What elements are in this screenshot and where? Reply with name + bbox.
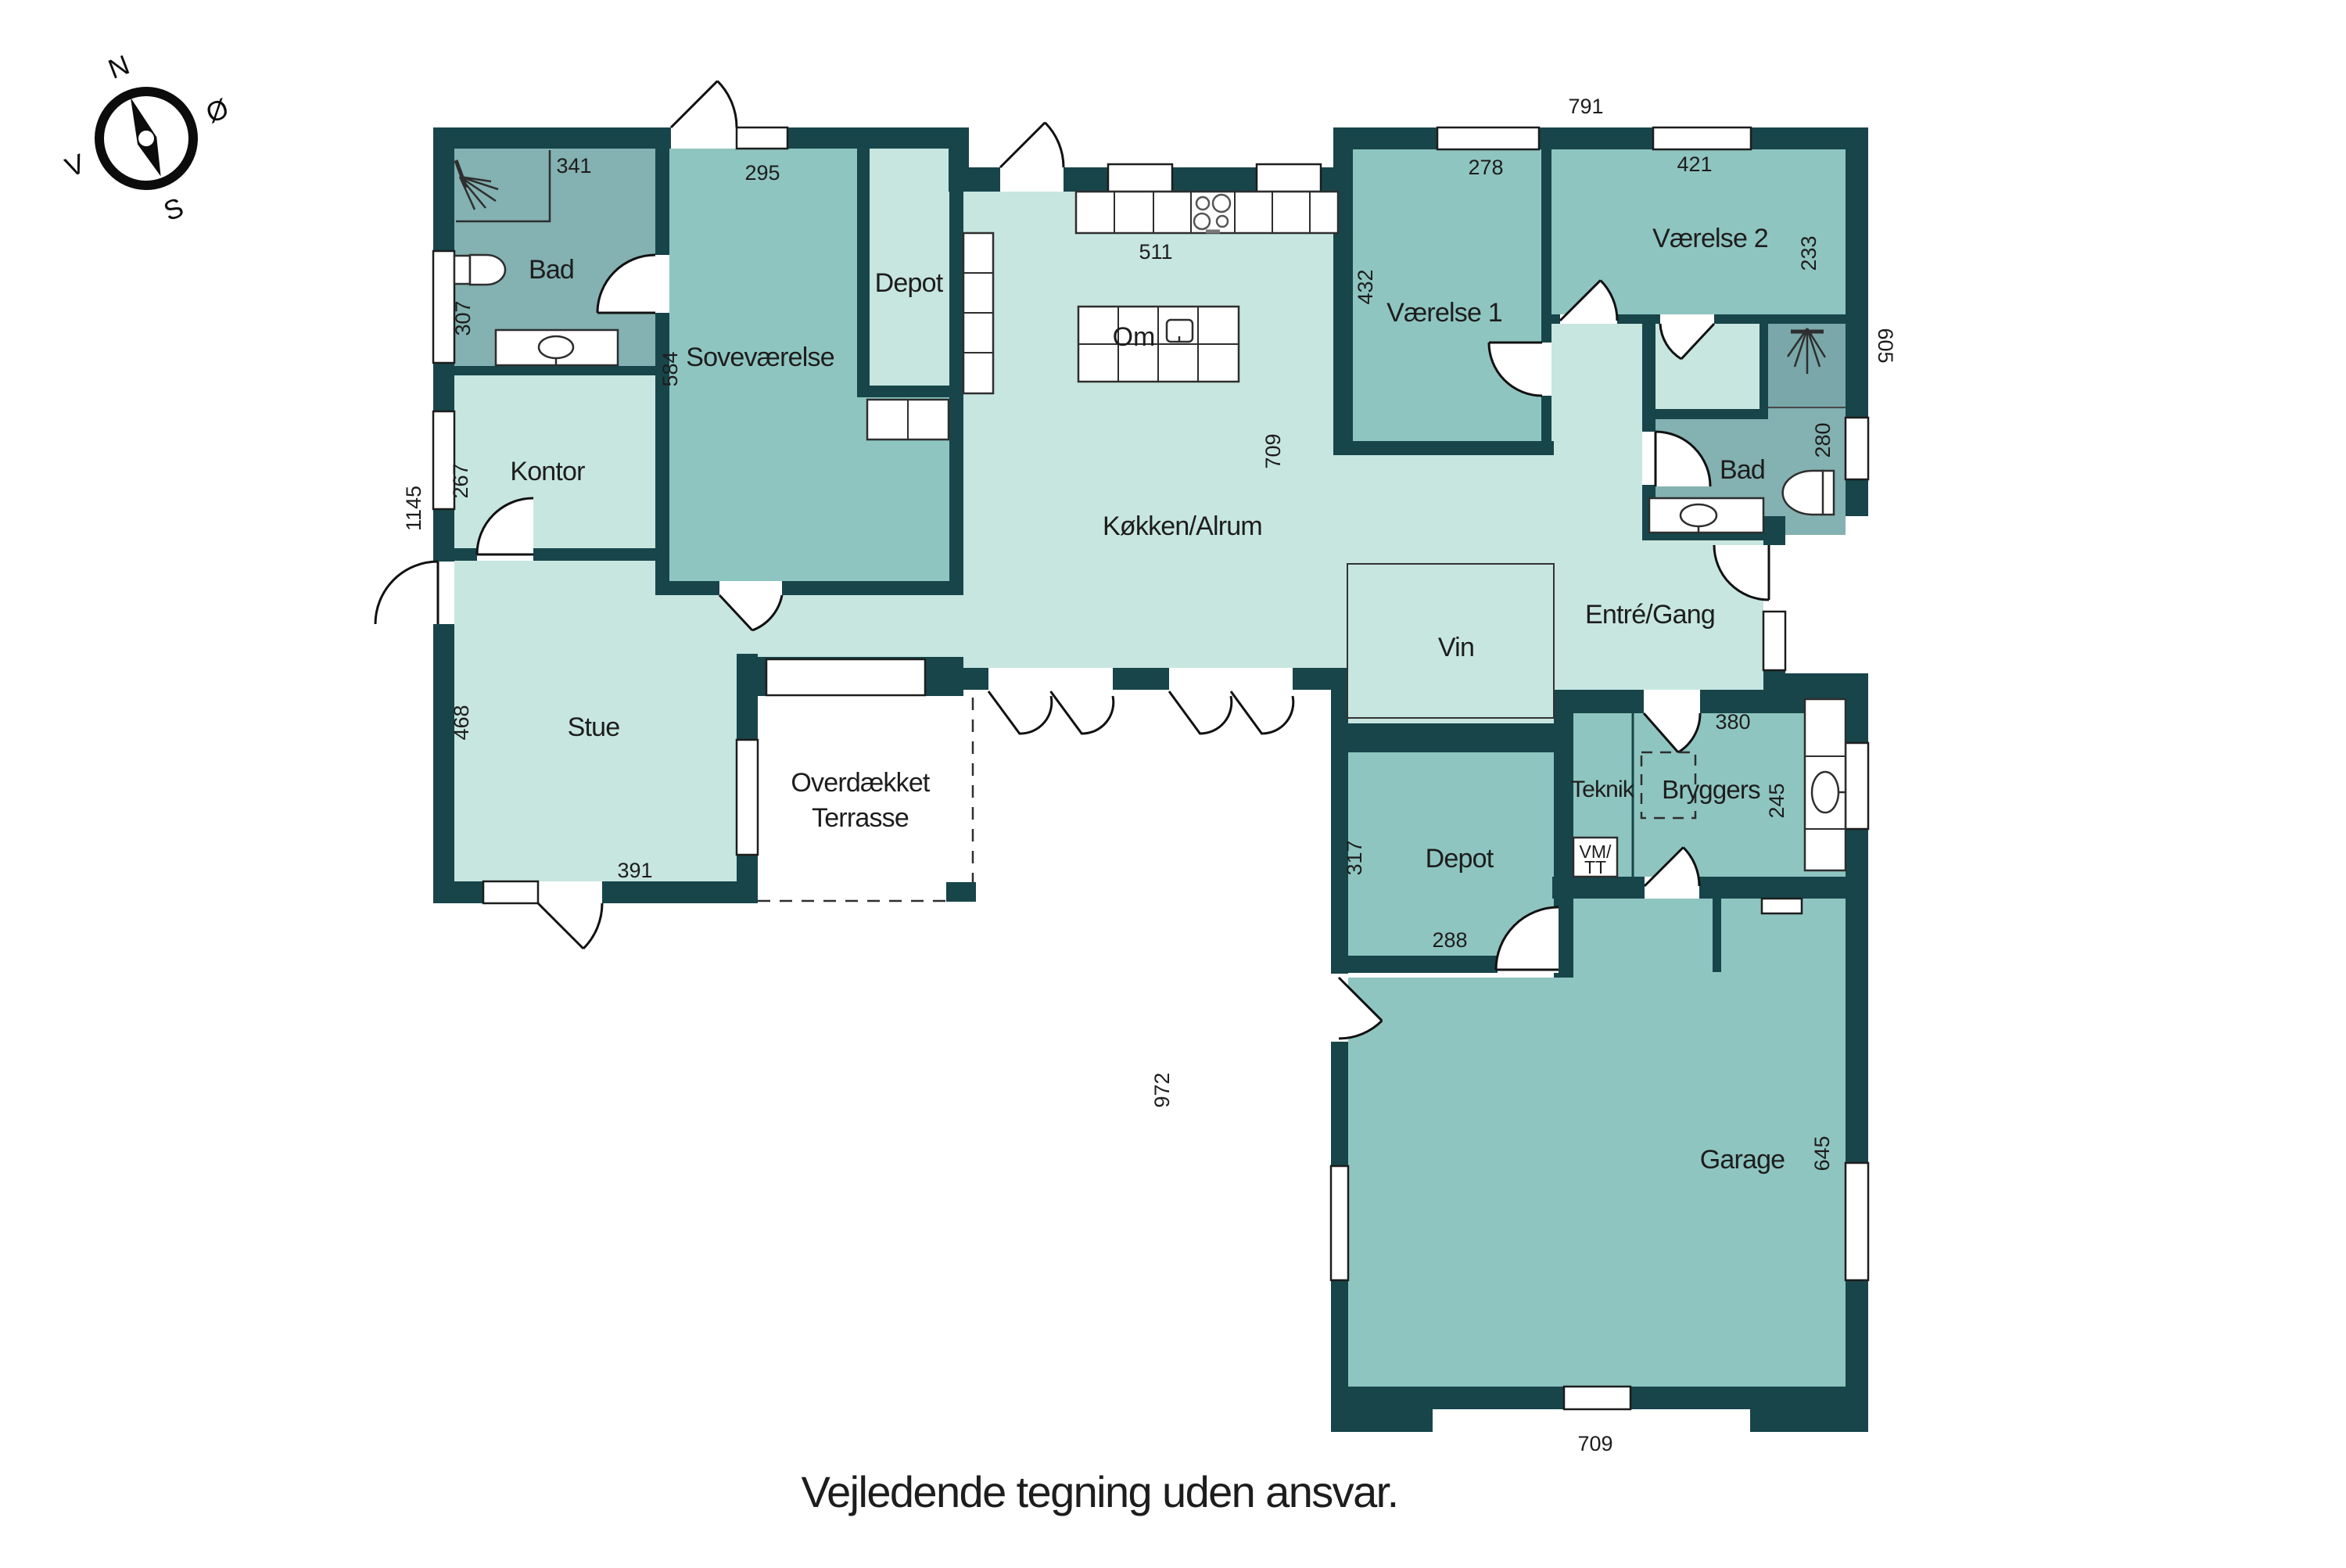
svg-text:TT: TT — [1584, 857, 1606, 877]
svg-text:245: 245 — [1765, 783, 1788, 818]
svg-text:791: 791 — [1568, 95, 1603, 118]
svg-text:Overdækket: Overdækket — [791, 768, 931, 798]
svg-text:Værelse 2: Værelse 2 — [1652, 224, 1768, 253]
svg-text:Bad: Bad — [529, 255, 574, 285]
svg-text:605: 605 — [1874, 328, 1897, 363]
svg-text:Stue: Stue — [568, 712, 620, 742]
svg-text:511: 511 — [1139, 240, 1172, 264]
svg-text:Soveværelse: Soveværelse — [686, 343, 834, 372]
svg-text:645: 645 — [1810, 1136, 1834, 1171]
svg-text:Om: Om — [1113, 322, 1156, 352]
svg-text:Depot: Depot — [1426, 844, 1494, 874]
svg-text:233: 233 — [1797, 235, 1820, 271]
svg-text:295: 295 — [744, 161, 780, 185]
svg-text:432: 432 — [1354, 269, 1377, 304]
svg-text:391: 391 — [617, 859, 652, 882]
svg-text:468: 468 — [450, 705, 473, 740]
svg-text:Bryggers: Bryggers — [1662, 775, 1760, 804]
svg-text:Kontor: Kontor — [510, 457, 585, 486]
svg-text:Køkken/Alrum: Køkken/Alrum — [1103, 511, 1262, 541]
svg-text:278: 278 — [1468, 156, 1503, 179]
svg-text:280: 280 — [1811, 422, 1835, 457]
svg-text:288: 288 — [1432, 928, 1467, 952]
svg-text:Teknik: Teknik — [1571, 777, 1635, 802]
svg-text:709: 709 — [1261, 433, 1285, 468]
svg-text:709: 709 — [1577, 1432, 1612, 1455]
svg-text:Depot: Depot — [875, 268, 944, 298]
svg-text:584: 584 — [658, 351, 682, 386]
svg-text:Vejledende tegning uden ansvar: Vejledende tegning uden ansvar. — [801, 1467, 1397, 1516]
svg-text:972: 972 — [1150, 1072, 1174, 1107]
svg-text:Garage: Garage — [1700, 1145, 1785, 1175]
svg-text:421: 421 — [1677, 152, 1712, 176]
svg-text:1145: 1145 — [402, 486, 425, 531]
svg-text:267: 267 — [449, 463, 472, 498]
svg-text:380: 380 — [1715, 710, 1750, 734]
svg-text:Terrasse: Terrasse — [812, 803, 909, 833]
svg-text:307: 307 — [451, 300, 475, 335]
svg-text:Bad: Bad — [1720, 455, 1765, 485]
svg-text:Vin: Vin — [1438, 633, 1474, 662]
svg-text:Værelse 1: Værelse 1 — [1386, 298, 1502, 328]
svg-text:317: 317 — [1343, 840, 1366, 875]
svg-text:Entré/Gang: Entré/Gang — [1585, 600, 1715, 630]
svg-text:341: 341 — [556, 154, 591, 178]
